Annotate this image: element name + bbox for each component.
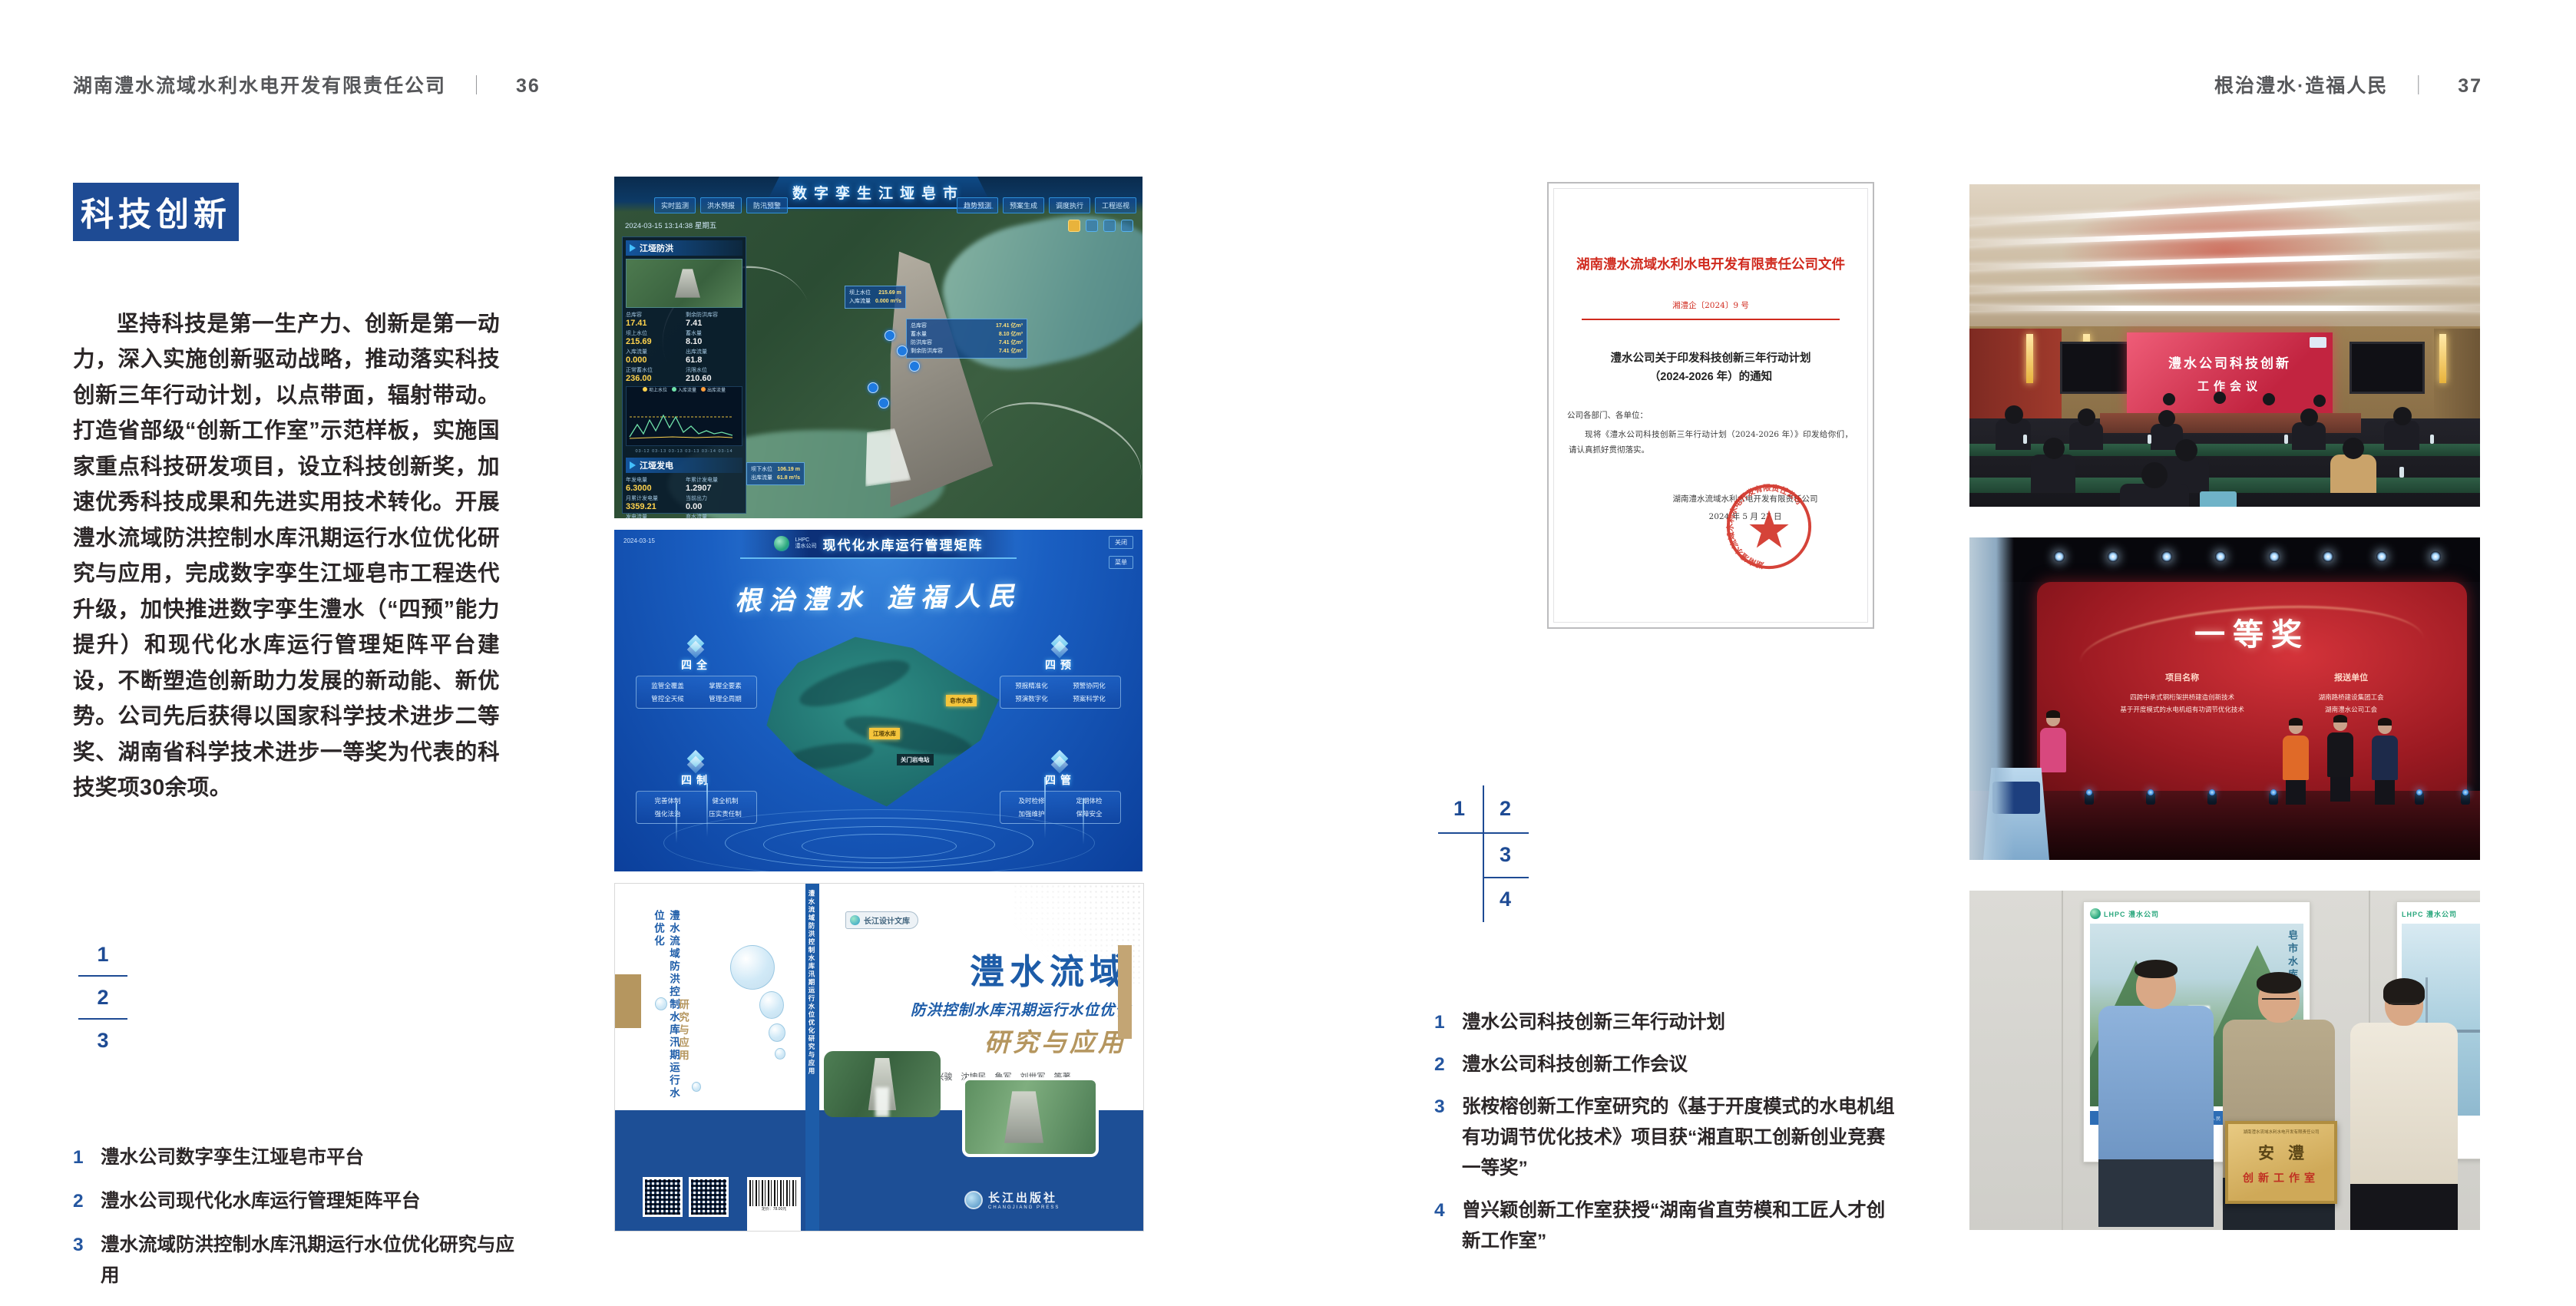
person-silhouette xyxy=(2158,410,2175,427)
lhpc-logo-icon xyxy=(2090,908,2101,919)
light-pillar xyxy=(1083,798,1084,845)
header-divider: ｜ xyxy=(467,75,488,97)
basin-terrain-map xyxy=(751,630,1012,814)
water-bottle xyxy=(2284,435,2288,444)
forecast-icon xyxy=(1047,636,1073,656)
panel-items: 预报精准化预警协同化 预演数字化预案科学化 xyxy=(1000,676,1121,709)
caption-item: 1澧水公司科技创新三年行动计划 xyxy=(1434,1007,1895,1038)
column-item: 基于开度模式的水电机组有功调节优化技术 xyxy=(2120,703,2244,716)
dashboard-tabs-left: 实时监测 洪水预报 防汛预警 xyxy=(654,197,788,213)
stat-cell: 汛限水位210.60 xyxy=(686,366,742,383)
light-pillar xyxy=(676,803,677,843)
document-red-rule xyxy=(1582,319,1839,320)
stat-cell: 当前出力0.00 xyxy=(686,494,742,511)
platform-header: LHPC澧水公司 现代化水库运行管理矩阵 xyxy=(740,530,1017,559)
ridge-shadow xyxy=(795,651,914,716)
chart-date-axis: 03-12 03-13 03-13 03-13 03-14 03-14 xyxy=(626,449,742,454)
figure-index-number: 1 xyxy=(1453,797,1465,821)
figure-index-number: 2 xyxy=(78,986,127,1009)
stat-cell: 剩余防洪库容7.41 xyxy=(686,311,742,328)
figure-index-number: 3 xyxy=(78,1029,127,1052)
logo-caption: LHPC澧水公司 xyxy=(795,537,817,550)
panel-name: 四制 xyxy=(636,772,757,788)
dashboard-timestamp: 2024-03-15 13:14:38 星期五 xyxy=(625,220,716,230)
man-blue-polo xyxy=(2098,964,2214,1227)
imprint-logo-icon xyxy=(850,915,860,925)
slogan-title: 根治澧水·造福人民 xyxy=(2214,75,2388,97)
stage-light xyxy=(2376,551,2387,562)
person-silhouette xyxy=(2163,393,2175,405)
caption-number: 1 xyxy=(1434,1007,1445,1038)
index-divider-line xyxy=(78,975,127,977)
tab-flood-forecast: 洪水预报 xyxy=(700,197,742,213)
figure-index-left: 1 2 3 xyxy=(78,943,127,1052)
dam-aerial-thumbnail xyxy=(626,259,742,308)
panel-title-flood: 江垭防洪 xyxy=(626,240,742,256)
figure-book-cover: 澧水流域防洪控制水库汛期运行水位优化 研究与应用 定价：78.00元 澧水流域防… xyxy=(614,883,1144,1232)
photo-workshop-plaque: LHPC 澧水公司 皂市水库 根治澧水 · 造福人民 LHPC 澧水公司 xyxy=(1969,891,2480,1230)
tab-realtime-monitor: 实时监测 xyxy=(654,197,696,213)
page-number-right: 37 xyxy=(2458,75,2482,97)
caption-item: 2澧水公司现代化水库运行管理矩阵平台 xyxy=(73,1186,518,1217)
caption-number: 4 xyxy=(1434,1195,1445,1226)
stat-cell: 正常蓄水位236.00 xyxy=(626,366,683,383)
layers-icon xyxy=(1086,220,1098,232)
caption-number: 2 xyxy=(1434,1050,1445,1080)
plaque-name: 安澧 xyxy=(2228,1141,2334,1164)
caption-item: 2澧水公司科技创新工作会议 xyxy=(1434,1050,1895,1080)
water-droplet xyxy=(759,991,784,1019)
person-silhouette xyxy=(2069,422,2103,450)
caption-item: 3张桉榕创新工作室研究的《基于开度模式的水电机组有功调节优化技术》项目获“湘直职… xyxy=(1434,1092,1895,1184)
user-icon xyxy=(1068,220,1080,232)
maintenance-icon xyxy=(1047,751,1073,771)
platform-date: 2024-03-15 xyxy=(623,537,655,544)
book-title-main: 澧水流域 xyxy=(907,944,1129,994)
page-number-left: 36 xyxy=(516,75,541,97)
panel-name: 四管 xyxy=(1000,772,1121,788)
back-tan-block xyxy=(615,974,641,1028)
person-silhouette xyxy=(2330,455,2376,493)
locate-icon xyxy=(1103,220,1116,232)
water-bottle xyxy=(2148,435,2151,444)
panel-siquan: 四全 监管全覆盖掌握全要素 管控全天候管理全周期 xyxy=(636,636,757,709)
figure-index-number: 1 xyxy=(78,943,127,966)
stat-cell: 月累计发电量3359.21 xyxy=(626,494,683,511)
water-droplet xyxy=(655,997,667,1010)
person-silhouette xyxy=(2292,422,2326,450)
tissue-box xyxy=(2200,491,2237,507)
publisher-icon xyxy=(964,1191,983,1209)
document-title: 澧水公司关于印发科技创新三年行动计划（2024-2026 年）的通知 xyxy=(1561,349,1860,386)
figure-digital-twin-dashboard: 数字孪生江垭皂市 实时监测 洪水预报 防汛预警 趋势预测 预案生成 调度执行 工… xyxy=(614,177,1143,518)
caption-text: 澧水公司科技创新三年行动计划 xyxy=(1462,1012,1725,1033)
awardee-orange xyxy=(2283,720,2309,805)
calligraphy-slogan: 根治澧水 造福人民 xyxy=(614,573,1143,620)
tab-flood-warning: 防汛预警 xyxy=(746,197,788,213)
stat-cell: 出库流量61.8 xyxy=(686,348,742,365)
stat-cell: 发电流量0.00 xyxy=(626,513,683,518)
menu-button: 菜单 xyxy=(1109,556,1133,569)
figure-index-number: 3 xyxy=(1500,843,1511,867)
person-silhouette xyxy=(2214,392,2226,404)
floor-spotlight xyxy=(2461,792,2470,805)
flood-stats-grid: 总库容17.41 剩余防洪库容7.41 坝上水位215.69 蓄水量8.10 入… xyxy=(626,311,742,383)
map-marker-guanmenyan: 关门岩电站 xyxy=(897,754,934,765)
person-silhouette xyxy=(2043,438,2065,459)
water-bottle xyxy=(2023,435,2027,444)
column-item: 湖南澧水公司工会 xyxy=(2319,703,2384,716)
index-grid-horizontal-line xyxy=(1483,877,1529,878)
plaque-company-line: 湖南澧水流域水利水电开发有限责任公司 xyxy=(2228,1129,2334,1135)
gate-marker xyxy=(878,398,889,408)
awardee-navy xyxy=(2372,720,2398,805)
person-silhouette xyxy=(2313,395,2326,407)
panel-siguan: 四管 及时检修定期体检 加强维护保障安全 xyxy=(1000,751,1121,824)
light-pillar xyxy=(1044,777,1046,838)
ceiling-light xyxy=(1969,306,2480,311)
caption-list-right: 1澧水公司科技创新三年行动计划 2澧水公司科技创新工作会议 3张桉榕创新工作室研… xyxy=(1434,1007,1895,1257)
tooltip-capacity: 总库容17.41 亿m³ 蓄水量8.10 亿m³ 防洪库容7.41 亿m³ 剩余… xyxy=(906,319,1027,359)
book-title-tail: 研究与应用 xyxy=(907,1022,1126,1059)
light-pillar xyxy=(706,783,708,837)
screen-title-line1: 澧水公司科技创新 xyxy=(2127,352,2333,372)
caption-number: 3 xyxy=(73,1230,84,1261)
wall-lamp xyxy=(2026,334,2033,383)
caption-text: 曾兴颖创新工作室获授“湖南省直劳模和工匠人才创新工作室” xyxy=(1462,1200,1885,1251)
water-droplet xyxy=(730,945,775,990)
chart-plot xyxy=(627,394,736,445)
header-divider: ｜ xyxy=(2409,75,2429,97)
column-item: 湖南路桥建设集团工会 xyxy=(2319,691,2384,703)
person-silhouette xyxy=(2078,408,2095,426)
wall-seam xyxy=(2062,891,2063,1230)
platform-title: 现代化水库运行管理矩阵 xyxy=(823,534,984,554)
panel-title-power: 江垭发电 xyxy=(626,458,742,473)
document-body: 现将《澧水公司科技创新三年行动计划（2024-2026 年）》印发给你们，请认真… xyxy=(1569,427,1853,458)
page-header-left: 湖南澧水流域水利水电开发有限责任公司 ｜ 36 xyxy=(73,71,541,98)
screen-logo xyxy=(2310,337,2326,348)
poster-logo-row: LHPC 澧水公司 xyxy=(2090,908,2303,919)
person-silhouette xyxy=(2141,462,2168,488)
imprint-badge: 长江设计文库 xyxy=(845,911,918,929)
building-icon xyxy=(683,751,709,771)
panel-sizhi: 四制 完善体制健全机制 强化法治压实责任制 xyxy=(636,751,757,824)
screen-title-line2: 工作会议 xyxy=(2127,378,2333,394)
company-name: 湖南澧水流域水利水电开发有限责任公司 xyxy=(73,75,446,97)
chart-legend: 坝上水位 入库流量 出库流量 xyxy=(627,386,742,393)
red-seal: 湖南澧水流域水利水电开发有限责任公司 xyxy=(1724,481,1814,572)
dashboard-left-panel: 江垭防洪 总库容17.41 剩余防洪库容7.41 坝上水位215.69 蓄水量8… xyxy=(622,236,746,514)
dashboard-title: 数字孪生江垭皂市 xyxy=(792,182,964,203)
document-number: 湘澧企〔2024〕9 号 xyxy=(1561,299,1860,311)
caption-text: 澧水公司数字孪生江垭皂市平台 xyxy=(101,1147,364,1168)
stage-light xyxy=(2430,551,2441,562)
document-salutation: 公司各部门、各单位： xyxy=(1567,409,1860,421)
figure-index-number: 4 xyxy=(1500,888,1511,911)
poster-logo-row: LHPC 澧水公司 xyxy=(2402,907,2480,921)
dashboard-system-icons xyxy=(1068,220,1133,232)
index-grid-horizontal-line xyxy=(1438,832,1529,834)
caption-text: 澧水公司科技创新工作会议 xyxy=(1462,1054,1688,1075)
plaque-subtitle: 创新工作室 xyxy=(2228,1170,2334,1185)
tab-project-inspect: 工程巡视 xyxy=(1095,197,1136,213)
tab-dispatch-execute: 调度执行 xyxy=(1049,197,1090,213)
water-bottle xyxy=(2430,435,2434,444)
power-stats-grid: 年发电量6.3000 年累计发电量1.2907 月累计发电量3359.21 当前… xyxy=(626,476,742,518)
index-grid-vertical-line xyxy=(1483,785,1484,922)
caption-number: 3 xyxy=(1434,1092,1445,1122)
lhpc-logo-icon xyxy=(774,536,789,551)
wall-lamp xyxy=(2439,334,2446,383)
meeting-screen: 澧水公司科技创新 工作会议 xyxy=(2127,332,2333,418)
back-cover-vertical-tail: 研究与应用 xyxy=(675,999,690,1063)
monitor-icon xyxy=(683,636,709,656)
dam-photo-band xyxy=(962,1077,1099,1157)
panel-siyu: 四预 预报精准化预警协同化 预演数字化预案科学化 xyxy=(1000,636,1121,709)
gate-marker xyxy=(885,330,895,341)
water-bottle xyxy=(2399,467,2404,478)
floor-spotlight xyxy=(2269,792,2278,805)
person-silhouette xyxy=(2031,455,2075,493)
hologram-ring xyxy=(663,809,1095,871)
caption-number: 2 xyxy=(73,1186,84,1217)
woman-white-top xyxy=(2350,983,2458,1230)
document-page: 湖南澧水流域水利水电开发有限责任公司文件 湘澧企〔2024〕9 号 澧水公司关于… xyxy=(1561,196,1860,615)
tooltip-upstream: 坝上水位215.69 m 入库流量0.000 m³/s xyxy=(845,286,906,309)
page-header-right: 根治澧水·造福人民 ｜ 37 xyxy=(2214,71,2482,98)
stat-cell: 蓄水量8.10 xyxy=(686,329,742,346)
dashboard-tabs-right: 趋势预测 预案生成 调度执行 工程巡视 xyxy=(957,197,1136,213)
stage-light xyxy=(2054,551,2065,562)
tab-trend-forecast: 趋势预测 xyxy=(957,197,998,213)
map-marker-zaoshi: 皂市水库 xyxy=(946,695,977,706)
caption-item: 4曾兴颖创新工作室获授“湖南省直劳模和工匠人才创新工作室” xyxy=(1434,1195,1895,1257)
spine-title: 澧水流域防洪控制水库汛期运行水位优化研究与应用 xyxy=(807,890,816,1105)
barcode: 定价：78.00元 xyxy=(747,1177,801,1231)
side-tv-screen xyxy=(2060,342,2135,394)
person-silhouette xyxy=(2175,439,2197,461)
dam-photo-front xyxy=(824,1051,941,1117)
caption-text: 张桉榕创新工作室研究的《基于开度模式的水电机组有功调节优化技术》项目获“湘直职工… xyxy=(1462,1096,1895,1179)
photo-innovation-meeting: 澧水公司科技创新 工作会议 xyxy=(1969,184,2480,507)
person-silhouette xyxy=(2393,407,2412,425)
caption-item: 1澧水公司数字孪生江垭皂市平台 xyxy=(73,1142,518,1173)
close-button: 关闭 xyxy=(1109,536,1133,549)
stat-cell: 年累计发电量1.2907 xyxy=(686,476,742,493)
book-title-sub: 防洪控制水库汛期运行水位优化 xyxy=(845,997,1131,1020)
presenter-suit xyxy=(2327,717,2353,802)
floor-spotlight xyxy=(2085,792,2094,805)
stage-light xyxy=(2215,551,2226,562)
figure-matrix-platform: LHPC澧水公司 现代化水库运行管理矩阵 2024-03-15 关闭 菜单 根治… xyxy=(614,530,1143,871)
caption-number: 1 xyxy=(73,1142,84,1173)
person-silhouette xyxy=(2263,393,2275,405)
qr-code xyxy=(689,1177,729,1217)
gate-marker xyxy=(909,361,920,372)
stage-light xyxy=(2269,551,2280,562)
qr-code xyxy=(643,1177,683,1217)
floor-spotlight xyxy=(2146,792,2155,805)
stat-cell: 弃水流量0.00 xyxy=(686,513,742,518)
document-date: 2024 年 5 月 27 日 xyxy=(1561,511,1860,522)
stage-side-wall xyxy=(1969,537,2014,860)
ridge-shadow xyxy=(780,739,875,774)
water-droplet xyxy=(692,1082,701,1092)
stage-light xyxy=(2108,551,2118,562)
caption-item: 3澧水流域防洪控制水库汛期运行水位优化研究与应用 xyxy=(73,1230,518,1291)
gold-plaque: 湖南澧水流域水利水电开发有限责任公司 安澧 创新工作室 xyxy=(2225,1121,2337,1204)
gate-marker xyxy=(868,382,878,393)
magazine-spread: 湖南澧水流域水利水电开发有限责任公司 ｜ 36 根治澧水·造福人民 ｜ 37 科… xyxy=(0,0,2576,1306)
water-level-chart: 坝上水位 入库流量 出库流量 xyxy=(626,386,742,446)
host-pink xyxy=(2040,713,2066,772)
water-droplet xyxy=(769,1023,785,1042)
stage-light xyxy=(2161,551,2172,562)
person-silhouette xyxy=(2300,408,2318,426)
figure-official-document: 湖南澧水流域水利水电开发有限责任公司文件 湘澧企〔2024〕9 号 澧水公司关于… xyxy=(1547,182,1874,629)
index-divider-line xyxy=(78,1018,127,1020)
floor-spotlight xyxy=(2415,792,2424,805)
section-body-text: 坚持科技是第一生产力、创新是第一动力，深入实施创新驱动战略，推动落实科技创新三年… xyxy=(73,306,500,806)
caption-text: 澧水公司现代化水库运行管理矩阵平台 xyxy=(101,1191,421,1212)
stat-cell: 坝上水位215.69 xyxy=(626,329,683,346)
tooltip-downstream: 坝下水位106.19 m 出库流量61.8 m³/s xyxy=(746,462,805,485)
map-marker-jiangya: 江垭水库 xyxy=(869,728,900,739)
publisher-logo: 长江出版社CHANGJIANG PRESS xyxy=(964,1189,1060,1210)
gate-marker xyxy=(897,346,908,356)
stat-cell: 入库流量0.000 xyxy=(626,348,683,365)
side-tv-screen xyxy=(2349,342,2425,394)
led-screen: 一等奖 项目名称 四跨中承式钢桁架拱桥建造创新技术 基于开度模式的水电机组有功调… xyxy=(2037,582,2467,791)
person-silhouette xyxy=(2005,405,2023,424)
stat-cell: 年发电量6.3000 xyxy=(626,476,683,493)
photo-award-ceremony: 一等奖 项目名称 四跨中承式钢桁架拱桥建造创新技术 基于开度模式的水电机组有功调… xyxy=(1969,537,2480,860)
panel-name: 四全 xyxy=(636,657,757,673)
water-droplet xyxy=(775,1048,785,1060)
front-tan-bar xyxy=(1118,945,1132,1039)
panel-name: 四预 xyxy=(1000,657,1121,673)
tab-plan-generate: 预案生成 xyxy=(1003,197,1044,213)
document-signer: 湖南澧水流域水利水电开发有限责任公司 xyxy=(1561,493,1860,504)
stat-cell: 总库容17.41 xyxy=(626,311,683,328)
caption-list-left: 1澧水公司数字孪生江垭皂市平台 2澧水公司现代化水库运行管理矩阵平台 3澧水流域… xyxy=(73,1142,518,1291)
stage-light xyxy=(2323,551,2333,562)
floor-spotlight xyxy=(2207,792,2217,805)
section-title-badge: 科技创新 xyxy=(73,183,239,241)
settings-icon xyxy=(1121,220,1133,232)
person-silhouette xyxy=(2343,438,2364,459)
caption-text: 澧水流域防洪控制水库汛期运行水位优化研究与应用 xyxy=(101,1235,514,1286)
panel-items: 监管全覆盖掌握全要素 管控全天候管理全周期 xyxy=(636,676,757,709)
figure-index-number: 2 xyxy=(1500,797,1511,821)
document-header: 湖南澧水流域水利水电开发有限责任公司文件 xyxy=(1561,254,1860,273)
